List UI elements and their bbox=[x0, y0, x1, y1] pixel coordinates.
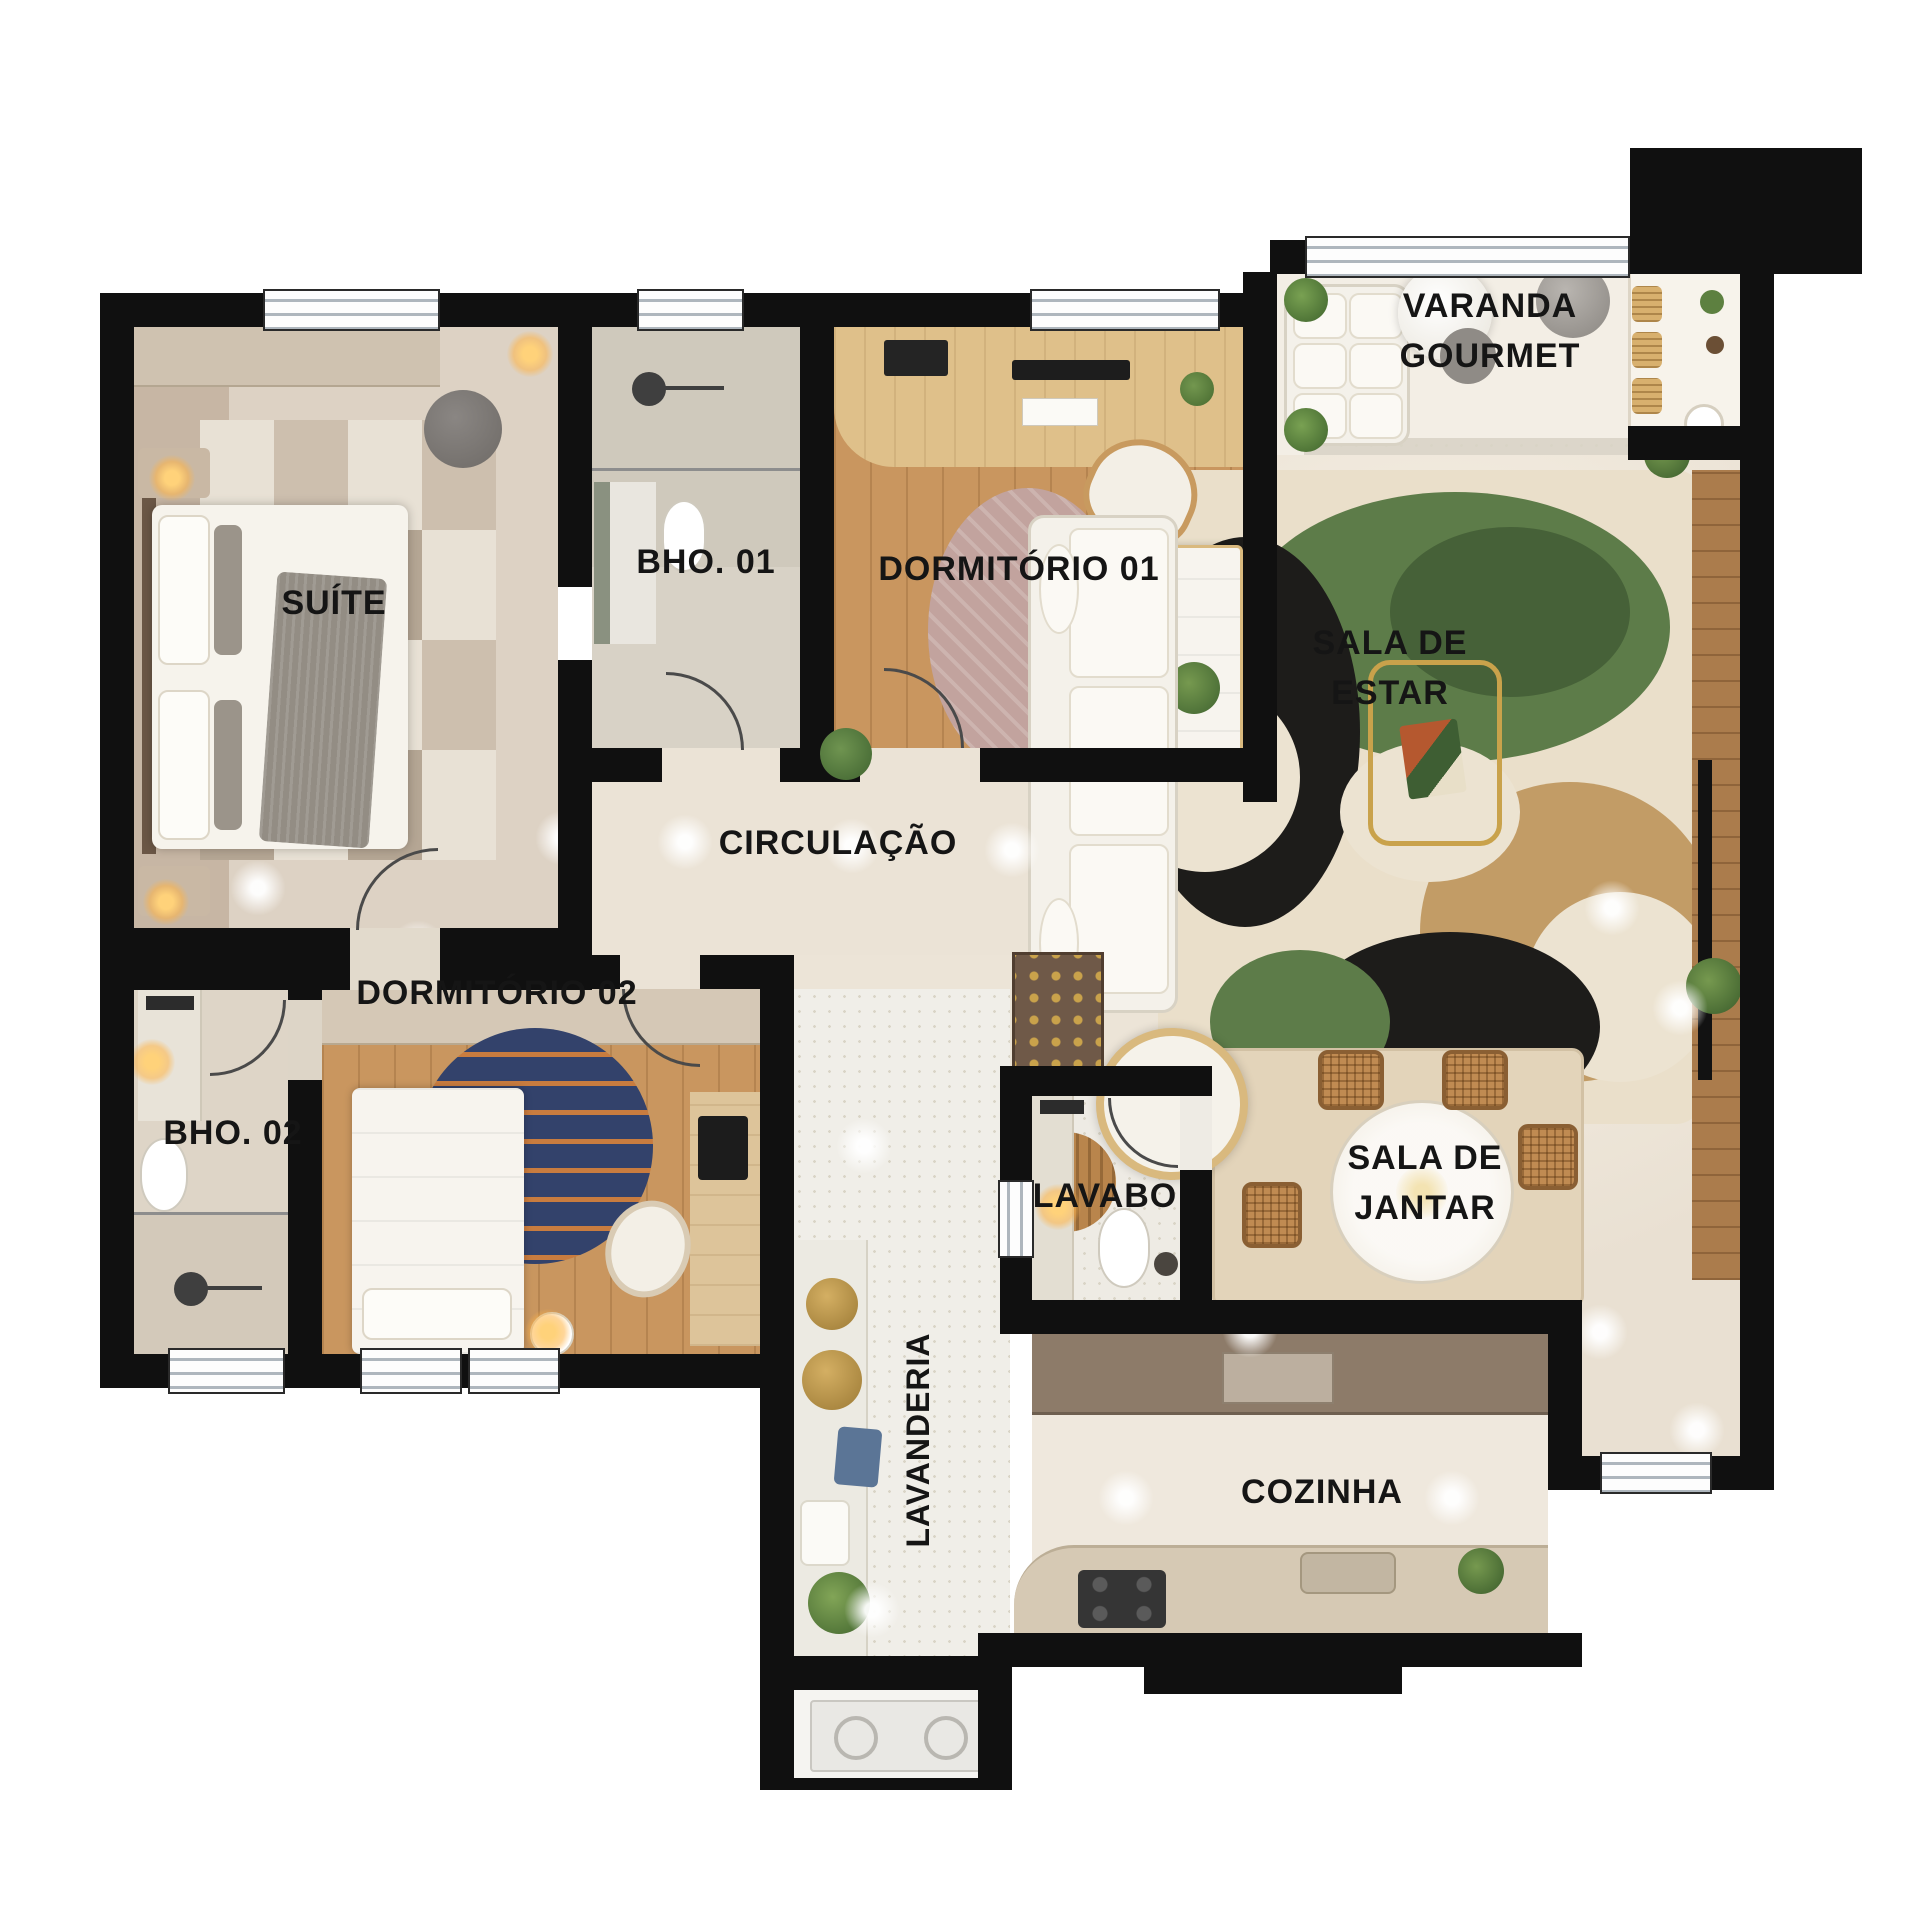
laundry-towels bbox=[800, 1500, 850, 1566]
bar-stool bbox=[1632, 286, 1662, 322]
room-label-suite: SUÍTE bbox=[281, 578, 386, 628]
wall-varanda-stub bbox=[1628, 426, 1740, 460]
laundry-towels-blue bbox=[834, 1426, 883, 1488]
desk-laptop bbox=[698, 1116, 748, 1180]
room-label-lavanderia: LAVANDERIA bbox=[893, 1332, 943, 1547]
suite-pillow bbox=[158, 690, 210, 840]
desk-keyboard bbox=[1022, 398, 1098, 426]
kitchen-appliance bbox=[1222, 1352, 1334, 1404]
laundry-bowl bbox=[802, 1350, 862, 1410]
suite-pillow-accent bbox=[214, 700, 242, 830]
ceiling-light bbox=[836, 1118, 892, 1174]
plant bbox=[1284, 278, 1328, 322]
floor-plan: SUÍTE BHO. 01 DORMITÓRIO 01 VARANDA GOUR… bbox=[0, 0, 1920, 1920]
desk-laptop bbox=[884, 340, 948, 376]
wall-kitchen-bottom-step bbox=[1144, 1664, 1402, 1694]
decor-bowl bbox=[1706, 336, 1724, 354]
room-label-lavabo: LAVABO bbox=[1033, 1171, 1178, 1221]
wall-kitchen-top bbox=[1000, 1300, 1582, 1334]
room-label-jantar: SALA DE JANTAR bbox=[1295, 1133, 1555, 1233]
room-label-dorm01: DORMITÓRIO 01 bbox=[878, 544, 1159, 594]
room-label-dorm02: DORMITÓRIO 02 bbox=[356, 968, 637, 1018]
dining-chair bbox=[1318, 1050, 1384, 1110]
tv bbox=[1698, 760, 1712, 1080]
room-label-cozinha: COZINHA bbox=[1241, 1467, 1403, 1517]
window bbox=[637, 289, 744, 331]
wall-bho01-dorm01 bbox=[800, 327, 834, 782]
table-lamp bbox=[149, 455, 195, 501]
shower-head-icon bbox=[632, 372, 666, 406]
wall-corridor-top bbox=[980, 748, 1277, 782]
room-label-varanda: VARANDA GOURMET bbox=[1350, 281, 1630, 381]
wall-right bbox=[1740, 270, 1774, 1490]
suite-pouf bbox=[424, 390, 502, 468]
wall-ledge-bottom bbox=[760, 1778, 1012, 1790]
suite-pillow-accent bbox=[214, 525, 242, 655]
bar-stool bbox=[1632, 332, 1662, 368]
room-label-bho02: BHO. 02 bbox=[163, 1108, 302, 1158]
ceiling-light bbox=[1669, 1402, 1725, 1458]
dining-chair bbox=[1242, 1182, 1302, 1248]
dining-chair bbox=[1442, 1050, 1508, 1110]
shower-head-icon bbox=[174, 1272, 208, 1306]
shower-arm bbox=[664, 386, 724, 390]
room-label-circulacao: CIRCULAÇÃO bbox=[719, 818, 958, 868]
window bbox=[263, 289, 440, 331]
wall-lavanderia-left bbox=[760, 1388, 794, 1788]
ceiling-light bbox=[1098, 1470, 1154, 1526]
wall-lavanderia-right bbox=[978, 1633, 1012, 1789]
window bbox=[360, 1348, 462, 1394]
lavabo-fixtures bbox=[1040, 1100, 1084, 1114]
suite-wardrobe bbox=[134, 327, 440, 387]
bho02-fixtures bbox=[146, 996, 194, 1010]
door-patch bbox=[288, 1000, 322, 1080]
wall-dorm02-right bbox=[760, 955, 794, 1388]
ceiling-light bbox=[1584, 880, 1640, 936]
door-patch bbox=[860, 748, 980, 782]
ceiling-light bbox=[230, 860, 286, 916]
kitchen-sink bbox=[1300, 1552, 1396, 1594]
door-patch bbox=[1180, 1096, 1212, 1170]
wall-kitchen-bottom bbox=[978, 1633, 1582, 1667]
shower-arm bbox=[206, 1286, 262, 1290]
window bbox=[468, 1348, 560, 1394]
window bbox=[1600, 1452, 1712, 1494]
ceiling-ring-light bbox=[507, 331, 553, 377]
plant bbox=[820, 728, 872, 780]
ac-unit bbox=[810, 1700, 994, 1772]
waste-bin bbox=[1154, 1252, 1178, 1276]
cooktop bbox=[1078, 1570, 1166, 1628]
shower-glass bbox=[134, 1212, 288, 1215]
wall-lamp bbox=[129, 1039, 175, 1085]
desk-monitor bbox=[1012, 360, 1130, 380]
bar-stool bbox=[1632, 378, 1662, 414]
table-lamp bbox=[143, 879, 189, 925]
plant bbox=[1458, 1548, 1504, 1594]
wall-left bbox=[100, 293, 134, 1388]
wall-suite-stub bbox=[558, 782, 592, 928]
door-patch bbox=[662, 748, 780, 782]
room-label-estar: SALA DE ESTAR bbox=[1265, 618, 1515, 718]
plant bbox=[1284, 408, 1328, 452]
wall-topright-block bbox=[1630, 148, 1862, 274]
coffee-table-book bbox=[1399, 718, 1467, 799]
ceiling-light bbox=[984, 822, 1040, 878]
window bbox=[998, 1180, 1034, 1258]
room-label-bho01: BHO. 01 bbox=[636, 537, 775, 587]
shower-glass bbox=[592, 468, 800, 471]
wall-corridor-top bbox=[558, 748, 662, 782]
wall-suite-bho01 bbox=[558, 327, 592, 587]
wall-suite-bottom bbox=[100, 928, 350, 990]
wall-bho02-dorm02 bbox=[288, 990, 322, 1000]
plant bbox=[1700, 290, 1724, 314]
suite-pillow bbox=[158, 515, 210, 665]
ceiling-light bbox=[1424, 1470, 1480, 1526]
ceiling-light bbox=[844, 1582, 900, 1638]
ceiling-light bbox=[657, 814, 713, 870]
window bbox=[1030, 289, 1220, 331]
wall-dorm01-right bbox=[1243, 272, 1277, 802]
wall-lavabo-right bbox=[1180, 1170, 1212, 1306]
laundry-bowl bbox=[806, 1278, 858, 1330]
ceiling-light bbox=[1652, 980, 1708, 1036]
window bbox=[168, 1348, 285, 1394]
dorm02-pillow bbox=[362, 1288, 512, 1340]
window bbox=[1305, 236, 1630, 278]
wall-lavabo-right bbox=[1180, 1066, 1212, 1096]
wall-lavanderia-bottom bbox=[760, 1656, 1010, 1690]
desk-plant bbox=[1180, 372, 1214, 406]
